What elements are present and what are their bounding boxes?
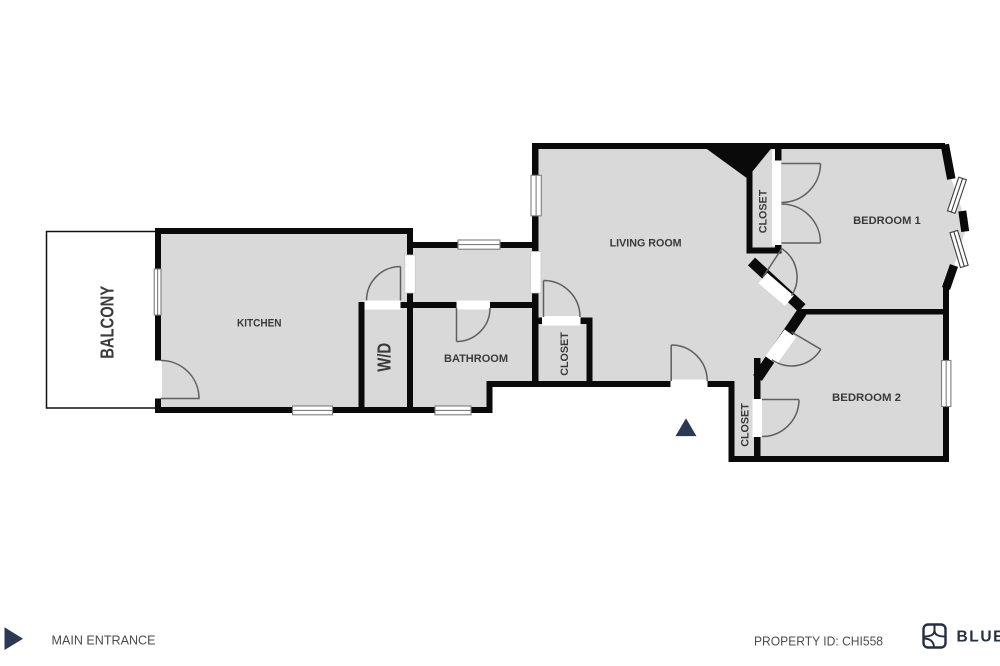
svg-text:PROPERTY ID: CHI558: PROPERTY ID: CHI558 [754, 633, 883, 648]
svg-text:MAIN ENTRANCE: MAIN ENTRANCE [52, 633, 156, 648]
svg-text:BATHROOM: BATHROOM [444, 353, 508, 365]
svg-text:CLOSET: CLOSET [757, 190, 769, 234]
svg-text:BEDROOM 1: BEDROOM 1 [853, 215, 921, 227]
svg-text:BEDROOM 2: BEDROOM 2 [832, 392, 901, 404]
svg-text:BLUEGROUND: BLUEGROUND [957, 629, 1000, 646]
svg-text:W/D: W/D [374, 343, 395, 372]
svg-text:BALCONY: BALCONY [97, 285, 118, 359]
svg-text:CLOSET: CLOSET [739, 403, 751, 447]
svg-text:CLOSET: CLOSET [559, 332, 571, 376]
svg-text:LIVING ROOM: LIVING ROOM [610, 238, 682, 250]
svg-text:KITCHEN: KITCHEN [237, 317, 282, 329]
